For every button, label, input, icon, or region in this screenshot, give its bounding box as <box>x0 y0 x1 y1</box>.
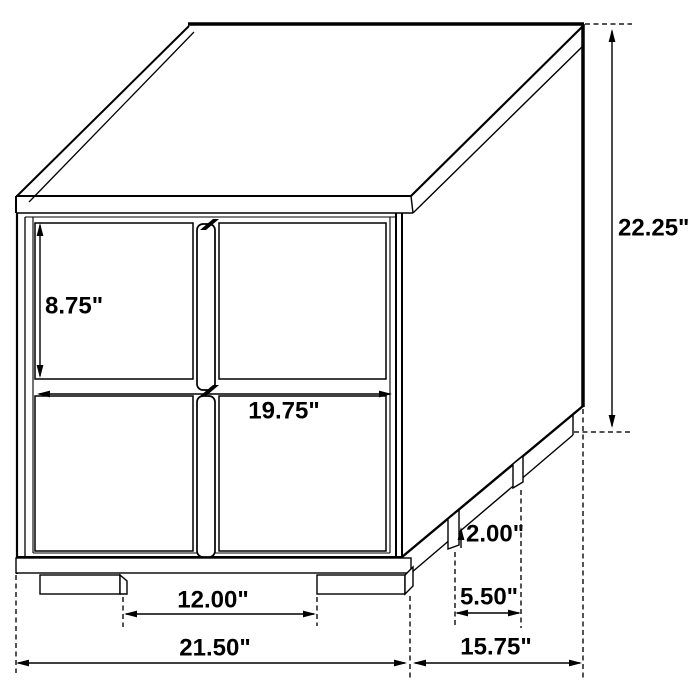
drawer-panel-top-right <box>219 223 386 379</box>
drawer-panel-bottom-left <box>35 396 193 551</box>
overall-height-label: 22.25" <box>618 215 689 242</box>
front-foot-left <box>40 575 120 594</box>
drawer-width-label: 19.75" <box>248 398 319 425</box>
nightstand-line-drawing: 19.75" 8.75" 22.25" 2.00" <box>0 0 700 700</box>
overall-depth-label: 15.75" <box>460 634 531 661</box>
base-band <box>16 558 411 573</box>
handle-bottom-drawer <box>197 396 215 557</box>
foot-height-label: 2.00" <box>466 521 524 548</box>
front-foot-spacing-label: 12.00" <box>177 587 248 614</box>
furniture-dimension-diagram: 19.75" 8.75" 22.25" 2.00" <box>0 0 700 700</box>
front-foot-right <box>317 575 405 594</box>
drawer-height-label: 8.75" <box>45 293 103 320</box>
overall-width-label: 21.50" <box>179 635 250 662</box>
handle-top-drawer <box>197 224 215 390</box>
dimension-foot-height: 2.00" <box>458 521 524 549</box>
side-foot-spacing-label: 5.50" <box>460 584 518 611</box>
